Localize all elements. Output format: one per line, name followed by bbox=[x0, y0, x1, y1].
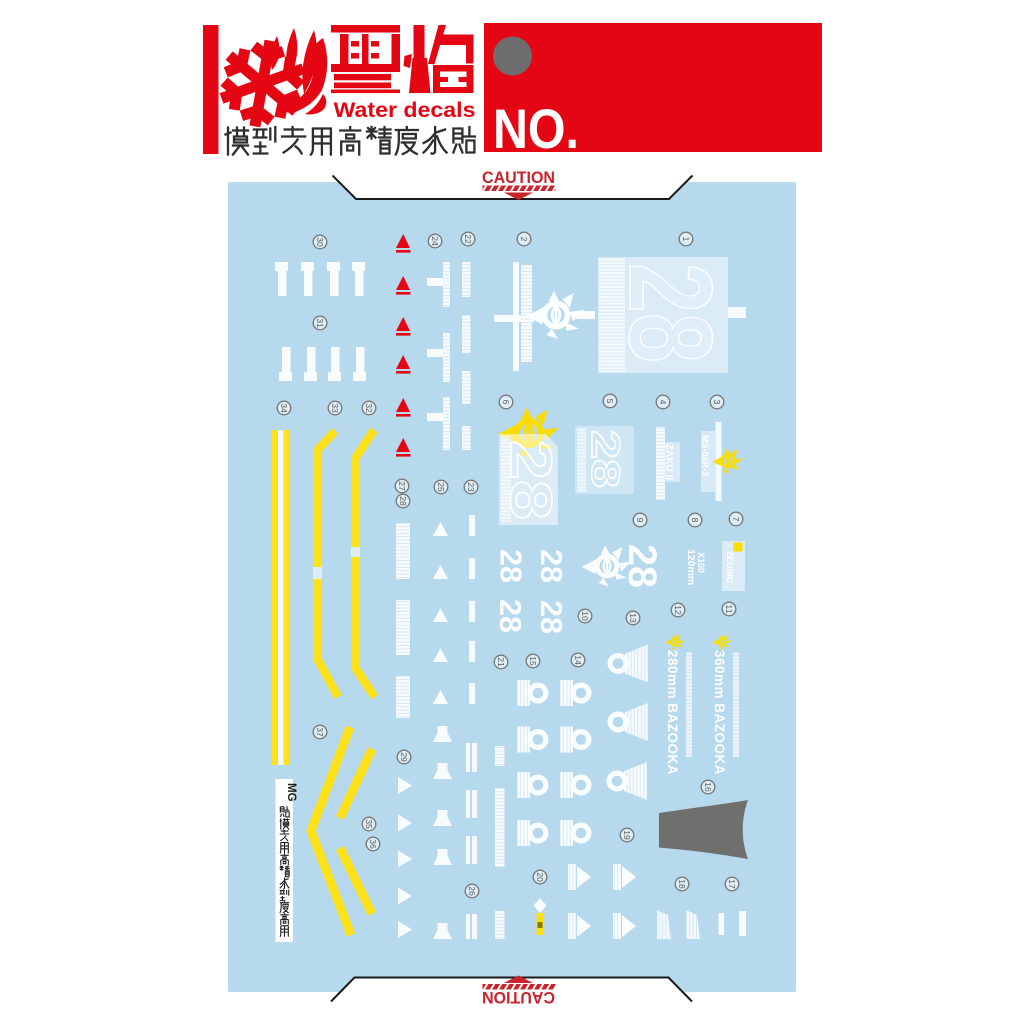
svg-text:X100: X100 bbox=[696, 552, 706, 573]
svg-text:28: 28 bbox=[398, 496, 408, 506]
svg-text:24: 24 bbox=[430, 236, 440, 246]
svg-text:21: 21 bbox=[496, 657, 506, 667]
svg-text:10: 10 bbox=[580, 611, 590, 621]
svg-text:11: 11 bbox=[724, 605, 734, 614]
svg-text:31: 31 bbox=[315, 318, 325, 328]
svg-text:13: 13 bbox=[628, 613, 638, 623]
svg-text:17: 17 bbox=[727, 879, 737, 889]
svg-text:28: 28 bbox=[494, 549, 529, 583]
svg-text:CAUTION: CAUTION bbox=[482, 988, 555, 1006]
svg-text:280mm BAZOOKA: 280mm BAZOOKA bbox=[665, 650, 680, 775]
svg-text:28: 28 bbox=[583, 430, 627, 488]
svg-text:26: 26 bbox=[467, 886, 477, 896]
svg-text:28: 28 bbox=[498, 440, 564, 520]
svg-text:CAUTION: CAUTION bbox=[482, 169, 555, 187]
svg-text:16: 16 bbox=[703, 782, 713, 792]
svg-text:3: 3 bbox=[712, 400, 722, 405]
svg-text:ZAKU II: ZAKU II bbox=[663, 444, 674, 480]
svg-text:Water decals: Water decals bbox=[334, 99, 476, 122]
svg-text:27: 27 bbox=[397, 481, 407, 491]
svg-text:18: 18 bbox=[677, 879, 687, 889]
svg-text:1: 1 bbox=[681, 237, 691, 242]
svg-text:23: 23 bbox=[466, 482, 476, 492]
svg-text:25: 25 bbox=[436, 482, 446, 492]
svg-text:37: 37 bbox=[315, 727, 325, 737]
svg-text:32: 32 bbox=[364, 403, 374, 413]
svg-text:7: 7 bbox=[731, 517, 741, 522]
svg-text:34: 34 bbox=[279, 403, 289, 413]
svg-text:29: 29 bbox=[399, 752, 409, 762]
svg-text:NO.: NO. bbox=[493, 97, 579, 160]
svg-text:30: 30 bbox=[315, 237, 325, 247]
svg-text:5: 5 bbox=[605, 399, 615, 404]
svg-text:ZEONIC: ZEONIC bbox=[725, 551, 735, 583]
svg-text:120mm: 120mm bbox=[685, 549, 697, 585]
svg-text:14: 14 bbox=[573, 655, 583, 665]
svg-text:360mm BAZOOKA: 360mm BAZOOKA bbox=[712, 650, 727, 775]
svg-text:4: 4 bbox=[658, 400, 668, 405]
svg-text:6: 6 bbox=[501, 400, 511, 405]
svg-text:2: 2 bbox=[519, 237, 529, 242]
svg-text:35: 35 bbox=[364, 819, 374, 829]
svg-text:36: 36 bbox=[368, 839, 378, 849]
svg-text:28: 28 bbox=[534, 549, 569, 583]
svg-text:19: 19 bbox=[622, 830, 632, 840]
svg-text:28: 28 bbox=[493, 599, 528, 633]
svg-text:9: 9 bbox=[635, 518, 645, 523]
svg-text:33: 33 bbox=[330, 403, 340, 413]
svg-text:20: 20 bbox=[535, 872, 545, 882]
svg-text:28: 28 bbox=[620, 544, 664, 588]
svg-text:MG: MG bbox=[285, 783, 297, 802]
svg-text:28: 28 bbox=[604, 263, 736, 363]
svg-text:8: 8 bbox=[690, 518, 700, 523]
svg-text:MS-06R-2: MS-06R-2 bbox=[700, 435, 710, 476]
svg-text:15: 15 bbox=[528, 656, 538, 666]
svg-text:28: 28 bbox=[534, 600, 569, 634]
svg-text:12: 12 bbox=[673, 605, 683, 615]
svg-text:22: 22 bbox=[463, 234, 473, 244]
